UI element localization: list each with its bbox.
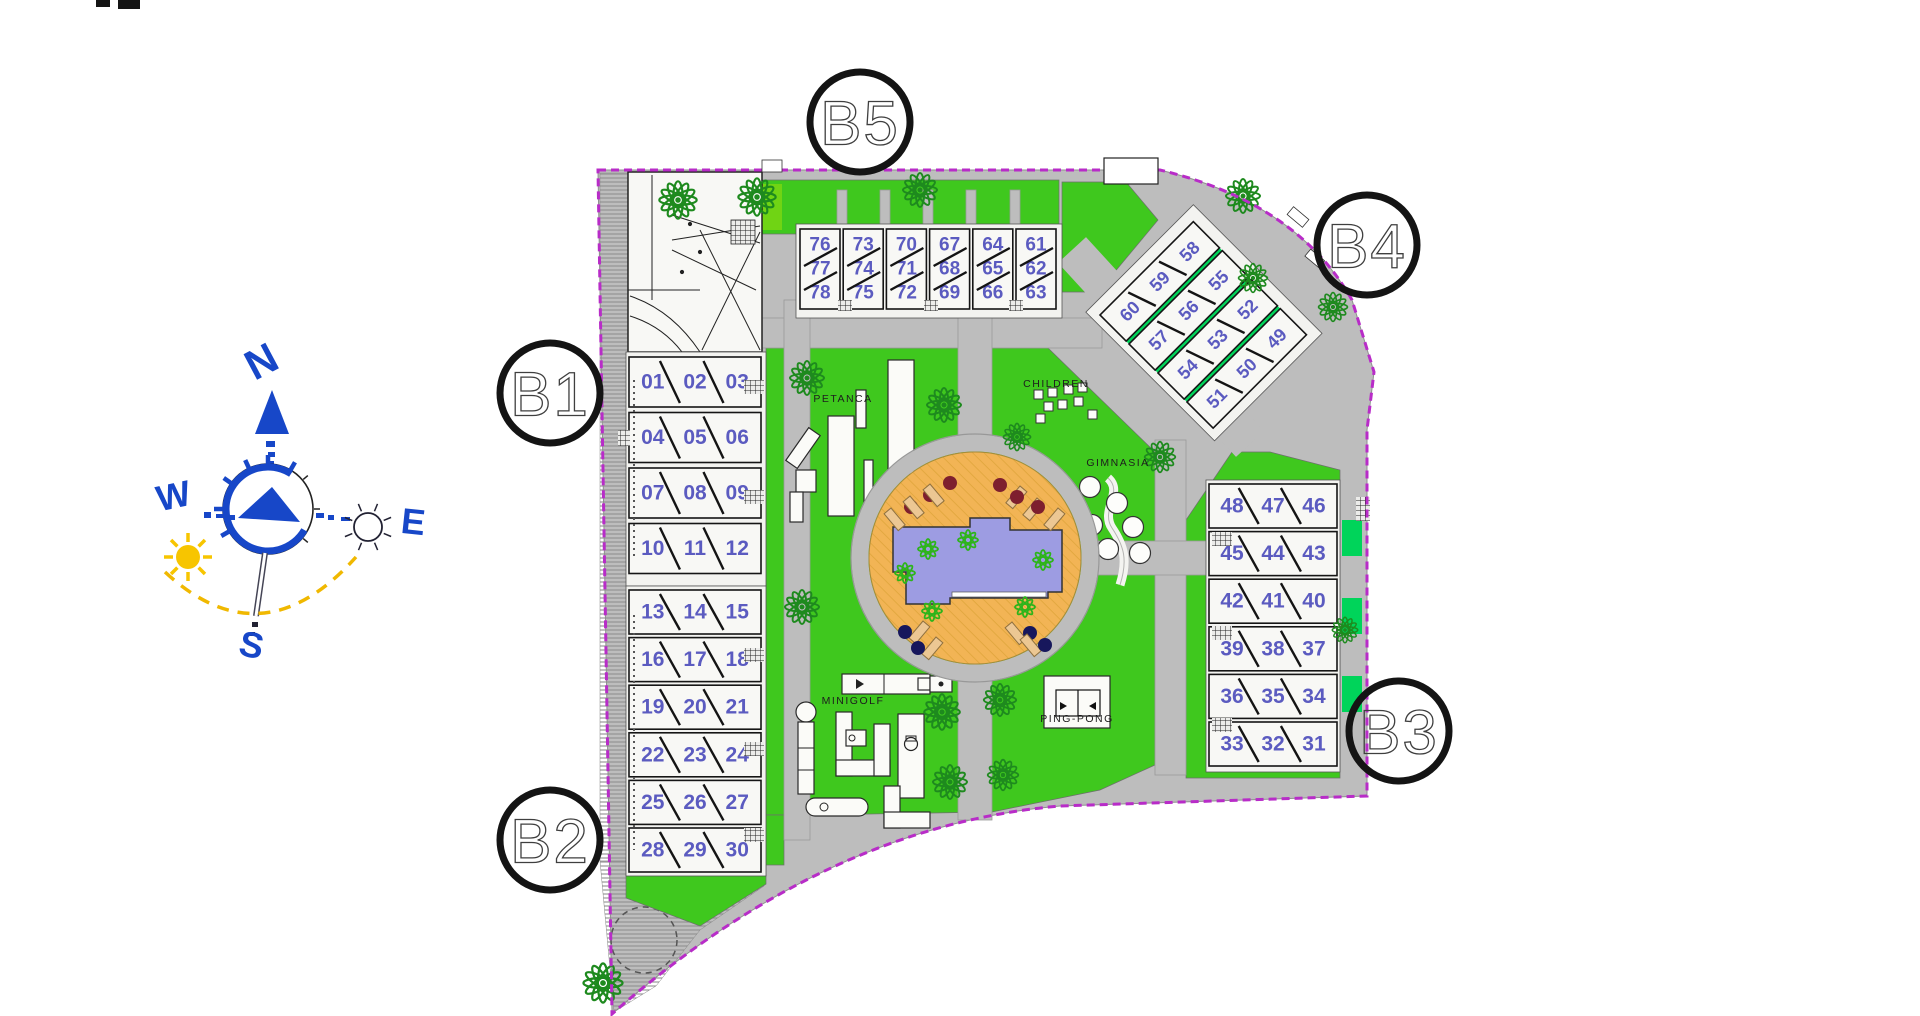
site-plan-drawing: 7677787374757071726768696465666162630102… [0, 0, 1920, 1016]
unit-number: 04 [641, 426, 665, 449]
unit-number: 14 [683, 601, 707, 624]
play-equipment [1058, 400, 1067, 409]
unit-number: 29 [683, 839, 706, 862]
lawn-strip [766, 815, 784, 865]
block-badge-label: B5 [820, 90, 900, 159]
amenity-label-minigolf: MINIGOLF [822, 695, 885, 707]
amenity-label-petanca: PETANCA [813, 393, 872, 405]
block-badge-b3[interactable]: B3 [1349, 681, 1449, 781]
road-top [762, 318, 1102, 348]
unit-number: 44 [1261, 542, 1285, 565]
unit-number: 27 [726, 791, 749, 814]
building[interactable]: 252627 [629, 780, 761, 824]
compass-west-label: W [153, 472, 195, 519]
pool [851, 434, 1099, 682]
road-spoke-bottom [958, 665, 992, 820]
building[interactable]: 737475 [843, 229, 883, 309]
building[interactable]: 101112 [629, 524, 761, 574]
unit-number: 47 [1261, 495, 1284, 518]
block-badge-b2[interactable]: B2 [500, 790, 600, 890]
unit-number: 32 [1261, 733, 1284, 756]
pool-water [893, 518, 1062, 604]
umbrella-icon [1010, 490, 1024, 504]
gym-station [1098, 539, 1119, 560]
boundary-tab [1287, 207, 1309, 228]
road-spoke-top [958, 300, 992, 450]
unit-number: 13 [641, 601, 664, 624]
unit-number: 16 [641, 648, 664, 671]
unit-number: 08 [683, 482, 707, 505]
building[interactable]: 646566 [973, 229, 1013, 309]
unit-number: 40 [1302, 590, 1325, 613]
gym-station [1130, 543, 1151, 564]
sun-icon [164, 533, 212, 581]
unit-number: 10 [641, 537, 664, 560]
building[interactable]: 616263 [1016, 229, 1056, 309]
building[interactable]: 010203 [629, 357, 761, 407]
site-plan-page: 7677787374757071726768696465666162630102… [0, 0, 1920, 1016]
unit-number: 20 [683, 696, 706, 719]
unit-number: 05 [683, 426, 707, 449]
umbrella-icon [898, 625, 912, 639]
unit-number: 37 [1302, 637, 1325, 660]
unit-number: 01 [641, 371, 665, 394]
unit-number: 34 [1302, 685, 1326, 708]
umbrella-icon [911, 641, 925, 655]
gate [1104, 158, 1158, 184]
unit-number: 42 [1220, 590, 1243, 613]
unit-number: 19 [641, 696, 664, 719]
unit-number: 43 [1302, 542, 1325, 565]
road-right [1155, 440, 1186, 775]
unit-number: 28 [641, 839, 665, 862]
north-arrow-icon [255, 390, 289, 465]
pool-lap-lane [952, 592, 1046, 597]
building[interactable]: 070809 [629, 468, 761, 518]
play-equipment [1074, 397, 1083, 406]
block-badge-label: B2 [510, 808, 590, 877]
sun-outline-icon [345, 504, 391, 550]
unit-number: 12 [726, 537, 749, 560]
block-badge-label: B3 [1359, 699, 1439, 768]
play-equipment [1034, 390, 1043, 399]
unit-number: 07 [641, 482, 664, 505]
unit-number: 31 [1302, 733, 1326, 756]
block-badge-label: B1 [510, 361, 590, 430]
building[interactable]: 676869 [930, 229, 970, 309]
building[interactable]: 040506 [629, 413, 761, 463]
umbrella-icon [993, 478, 1007, 492]
unit-number: 35 [1261, 685, 1285, 708]
unit-number: 38 [1261, 637, 1285, 660]
building[interactable]: 192021 [629, 685, 761, 729]
amenity-label-pingpong: PING-PONG [1040, 713, 1114, 725]
unit-number: 02 [683, 371, 706, 394]
unit-number: 25 [641, 791, 665, 814]
play-equipment [1044, 402, 1053, 411]
unit-number: 48 [1220, 495, 1244, 518]
building[interactable]: 484746 [1209, 484, 1337, 528]
cropped-logo [96, 0, 140, 9]
block-badge-label: B4 [1327, 213, 1407, 282]
building[interactable]: 363534 [1209, 674, 1337, 718]
umbrella-icon [1038, 638, 1052, 652]
umbrella-icon [1031, 500, 1045, 514]
east-dashes [316, 513, 350, 521]
building[interactable]: 282930 [629, 828, 761, 872]
gym-station [1123, 517, 1144, 538]
unit-number: 36 [1220, 685, 1243, 708]
unit-number: 26 [683, 791, 706, 814]
gym-station [1107, 493, 1128, 514]
unit-number: 15 [726, 601, 750, 624]
block-badge-b5[interactable]: B5 [810, 72, 910, 172]
compass-dial [211, 452, 326, 567]
west-dashes [204, 512, 235, 520]
boundary-tab [762, 160, 782, 172]
building[interactable]: 707172 [886, 229, 926, 309]
amenity-label-gimnasia: GIMNASIA [1086, 457, 1149, 469]
building[interactable]: 424140 [1209, 579, 1337, 623]
play-equipment [1036, 414, 1045, 423]
gym-station [1080, 477, 1101, 498]
unit-number: 46 [1302, 495, 1325, 518]
unit-number: 41 [1261, 590, 1285, 613]
unit-number: 11 [684, 537, 707, 560]
block-badge-b4[interactable]: B4 [1317, 195, 1417, 295]
building[interactable]: 222324 [629, 733, 761, 777]
compass-east-label: E [399, 500, 427, 543]
umbrella-icon [943, 476, 957, 490]
building[interactable]: 161718 [629, 638, 761, 682]
unit-number: 22 [641, 743, 664, 766]
compass-south-label: S [236, 622, 268, 667]
unit-number: 39 [1220, 637, 1243, 660]
unit-number: 21 [726, 696, 750, 719]
play-equipment [1088, 410, 1097, 419]
unit-number: 06 [726, 426, 749, 449]
building[interactable]: 767778 [800, 229, 840, 309]
compass-north-label: N [237, 333, 286, 389]
building[interactable]: 131415 [629, 590, 761, 634]
unit-number: 33 [1220, 733, 1243, 756]
unit-number: 23 [683, 743, 706, 766]
block-badge-b1[interactable]: B1 [500, 343, 600, 443]
amenity-label-children: CHILDREN [1023, 378, 1089, 390]
compass: N W E S [153, 333, 428, 667]
unit-number: 17 [683, 648, 706, 671]
